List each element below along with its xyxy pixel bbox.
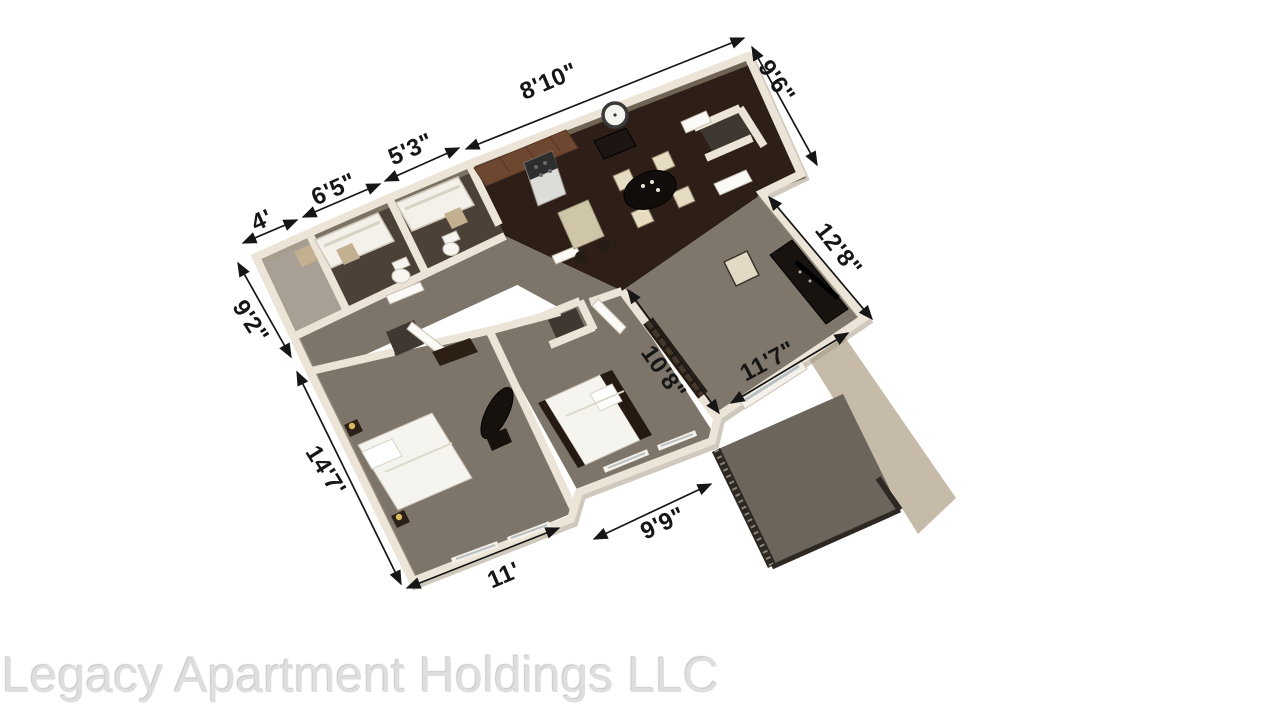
- toilet-2: [443, 243, 459, 256]
- lamp-2: [396, 514, 402, 520]
- toilet-1: [392, 269, 410, 283]
- watermark: Legacy Apartment Holdings LLC: [2, 646, 719, 704]
- floorplan-page: 4' 6'5" 5'3" 8'10" 9'6" 12'8" 9'2" 14'7'…: [0, 0, 1280, 720]
- bar-stool: [575, 251, 587, 263]
- lamp-1: [349, 423, 355, 429]
- bar-stool-2: [598, 240, 610, 252]
